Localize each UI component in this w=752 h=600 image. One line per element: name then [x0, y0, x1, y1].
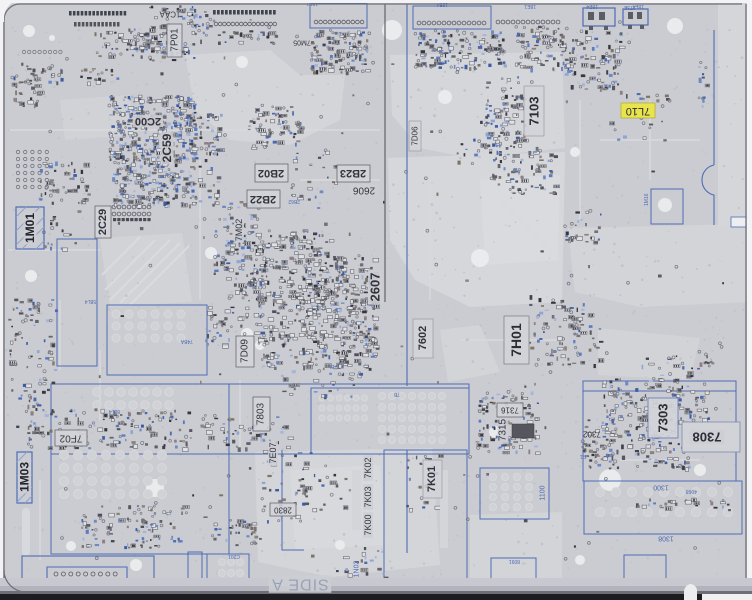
- svg-text:1M16: 1M16: [644, 193, 650, 206]
